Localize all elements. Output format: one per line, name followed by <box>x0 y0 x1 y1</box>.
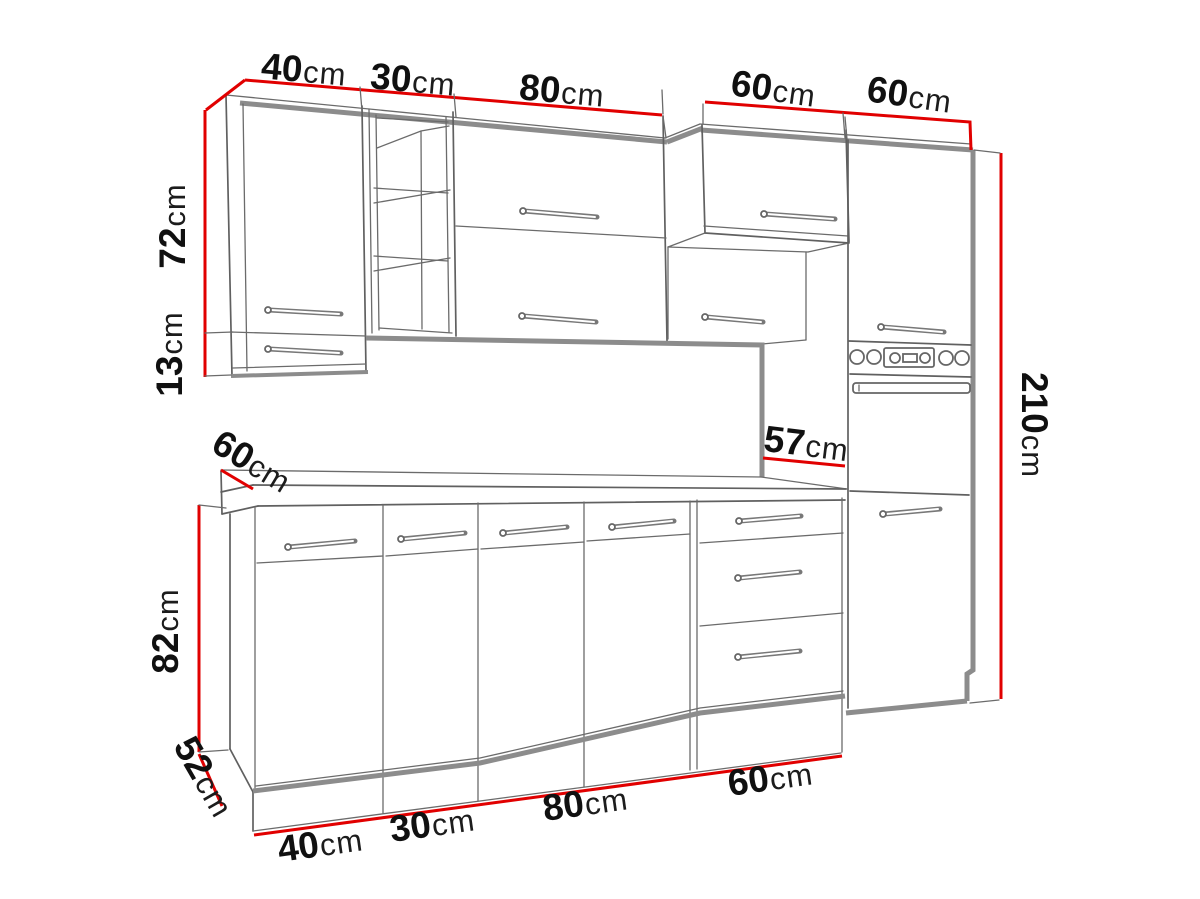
dimension-labels: 40cm 30cm 80cm 60cm 60cm 72cm 13cm 60cm … <box>145 45 1055 869</box>
dim-left-72: 72cm <box>152 183 193 268</box>
hood-cabinet-60 <box>668 125 849 252</box>
dim-left-82: 82cm <box>145 588 186 673</box>
dim-top-80: 80cm <box>518 66 607 114</box>
dim-top-60-left: 60cm <box>729 62 819 114</box>
dim-right-210: 210cm <box>1014 372 1055 478</box>
shelf <box>374 188 450 203</box>
diagram-canvas: 40cm 30cm 80cm 60cm 60cm 72cm 13cm 60cm … <box>0 0 1200 899</box>
dim-top-40: 40cm <box>260 45 349 93</box>
open-shelf-unit-30 <box>369 109 456 336</box>
dimension-lines-red <box>199 80 1001 835</box>
dim-counter-57: 57cm <box>762 418 852 469</box>
door-handle <box>265 346 341 353</box>
door-handle <box>878 324 944 332</box>
drawer-handle <box>735 572 800 581</box>
wall-cabinet-40 <box>226 95 368 376</box>
backsplash-niche-outline <box>366 338 762 477</box>
door-handle <box>519 313 596 322</box>
oven-door-handle <box>853 383 970 393</box>
drawer-handle <box>735 651 800 660</box>
door-handle <box>265 307 341 314</box>
drawer-handle <box>736 516 801 524</box>
door-handle <box>702 314 763 322</box>
door-handle <box>285 541 355 550</box>
door-handle <box>761 211 835 219</box>
door-handle <box>609 521 674 530</box>
door-handle <box>500 527 567 536</box>
door-handle <box>398 533 465 542</box>
recessed-wall-box <box>668 247 806 344</box>
dim-left-13: 13cm <box>149 311 190 396</box>
door-handle <box>520 208 597 217</box>
oven-control-panel <box>850 348 969 367</box>
dim-top-60-right: 60cm <box>865 68 955 120</box>
door-handle <box>880 509 940 517</box>
shelf <box>374 256 450 271</box>
dim-bottom-80: 80cm <box>540 776 630 828</box>
dim-top-30: 30cm <box>369 55 458 103</box>
countertop <box>221 470 847 514</box>
wall-cabinet-80 <box>456 116 667 341</box>
dimension-extension-ticks <box>199 87 1000 752</box>
drawer-unit-60 <box>700 516 843 660</box>
kitchen-dimension-diagram: 40cm 30cm 80cm 60cm 60cm 72cm 13cm 60cm … <box>0 0 1200 899</box>
dim-bottom-30: 30cm <box>387 797 477 849</box>
tall-oven-cabinet-60 <box>845 117 973 713</box>
dim-bottom-60: 60cm <box>725 751 815 803</box>
dim-left-52: 52cm <box>166 729 244 824</box>
